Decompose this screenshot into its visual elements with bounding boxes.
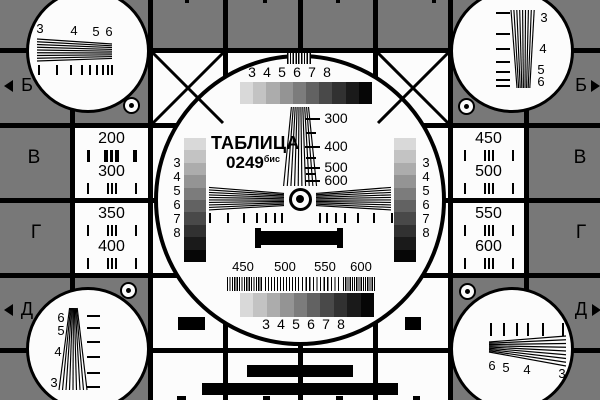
line-group xyxy=(512,150,514,161)
top-right-tick xyxy=(496,79,510,81)
grayscale-step xyxy=(184,200,206,212)
corner-circle-bottom-left xyxy=(26,287,150,400)
resolution-bar xyxy=(492,258,494,269)
grayscale-step xyxy=(320,293,333,317)
center-left-scale-label: 7 xyxy=(173,212,180,225)
resolution-bar xyxy=(110,150,114,162)
row-marker-right: В xyxy=(574,148,587,167)
resolution-value: 500 xyxy=(475,164,502,180)
burst-frequency-label: 450 xyxy=(232,260,254,273)
bottom-edge-number-fragment xyxy=(413,396,420,400)
line-group xyxy=(484,225,494,236)
center-right-scale-label: 3 xyxy=(422,156,429,169)
resolution-bar xyxy=(488,258,490,269)
grayscale-step xyxy=(332,82,345,104)
top-right-circle-label: 4 xyxy=(539,42,546,55)
center-burst-tick-right xyxy=(335,213,337,223)
frequency-label: 400 xyxy=(324,139,347,153)
step-wedge-top xyxy=(240,82,372,104)
grayscale-step xyxy=(184,250,206,262)
resolution-bar xyxy=(484,258,486,269)
resolution-value: 550 xyxy=(475,206,502,222)
bottom-right-tick xyxy=(490,323,492,336)
center-top-scale-label: 6 xyxy=(293,65,301,79)
resolution-value: 350 xyxy=(98,206,125,222)
bottom-bar-lower xyxy=(202,383,398,395)
center-left-scale-label: 5 xyxy=(173,184,180,197)
resolution-bar xyxy=(464,150,466,161)
center-bottom-scale-label: 7 xyxy=(322,317,330,331)
row-marker-arrow-left xyxy=(4,304,13,316)
step-wedge-bottom xyxy=(240,293,374,317)
top-right-circle-label: 3 xyxy=(540,11,547,24)
grayscale-step xyxy=(294,293,307,317)
line-group xyxy=(464,183,466,194)
frequency-scale-tick-major xyxy=(305,180,320,182)
frequency-scale-tick-major xyxy=(305,167,320,169)
grayscale-step xyxy=(184,188,206,200)
center-burst-tick-left xyxy=(209,213,211,223)
registration-mark-bottom-left xyxy=(120,282,137,299)
resolution-bar xyxy=(488,225,490,236)
resolution-bar xyxy=(484,225,486,236)
grayscale-step xyxy=(266,82,279,104)
top-left-circle-label: 5 xyxy=(92,25,99,38)
frequency-scale-tick-minor xyxy=(306,157,316,159)
line-group-pattern xyxy=(464,183,514,194)
top-left-tick xyxy=(38,65,40,75)
resolution-value: 300 xyxy=(98,164,125,180)
line-group xyxy=(464,150,466,161)
grayscale-step xyxy=(240,82,253,104)
resolution-cell-right-upper: 450500 xyxy=(453,128,524,198)
registration-mark-bottom-right xyxy=(459,283,476,300)
grayscale-step xyxy=(394,150,416,162)
top-right-tick xyxy=(496,71,510,73)
resolution-bar xyxy=(484,150,486,161)
grayscale-step xyxy=(184,237,206,249)
bottom-bar-upper xyxy=(247,365,353,377)
row-marker-right: Б xyxy=(575,76,587,94)
grayscale-step xyxy=(184,175,206,187)
top-right-tick xyxy=(496,48,510,50)
center-bottom-scale-label: 6 xyxy=(307,317,315,331)
resolution-bar xyxy=(107,258,109,269)
line-group xyxy=(464,258,466,269)
line-group xyxy=(484,183,494,194)
resolution-bar xyxy=(492,225,494,236)
center-top-scale-label: 5 xyxy=(278,65,286,79)
resolution-bar xyxy=(107,183,109,194)
black-reference-bar xyxy=(258,231,338,245)
grayscale-step xyxy=(319,82,332,104)
center-top-scale-label: 7 xyxy=(308,65,316,79)
bottom-left-tick xyxy=(87,356,100,358)
grayscale-step xyxy=(394,225,416,237)
top-edge-number-fragment xyxy=(263,0,267,3)
line-group xyxy=(484,150,494,161)
multiburst-segment xyxy=(343,277,375,291)
bottom-right-circle-label: 5 xyxy=(502,361,509,374)
grayscale-step xyxy=(253,82,266,104)
resolution-bar xyxy=(133,150,137,162)
grayscale-step xyxy=(184,163,206,175)
resolution-bar xyxy=(135,258,137,269)
bullseye-center-dot xyxy=(126,288,131,293)
top-right-tick xyxy=(496,85,510,87)
grayscale-step xyxy=(359,82,372,104)
line-group xyxy=(464,225,466,236)
grayscale-step xyxy=(184,212,206,224)
center-bottom-scale-label: 5 xyxy=(292,317,300,331)
center-burst-tick-left xyxy=(227,213,229,223)
center-left-scale-label: 8 xyxy=(173,226,180,239)
line-group-pattern xyxy=(464,258,514,269)
grayscale-step xyxy=(293,82,306,104)
line-group-pattern xyxy=(464,150,514,161)
center-burst-tick-right xyxy=(357,213,359,223)
center-right-scale-label: 4 xyxy=(422,170,429,183)
bottom-left-tick xyxy=(87,315,100,317)
resolution-value: 400 xyxy=(98,239,125,255)
center-burst-tick-left xyxy=(243,213,245,223)
bottom-right-circle-label: 6 xyxy=(488,359,495,372)
grayscale-step xyxy=(394,212,416,224)
resolution-bar xyxy=(484,183,486,194)
center-burst-tick-left xyxy=(256,213,258,223)
resolution-bar xyxy=(107,225,109,236)
bottom-edge-number-fragment xyxy=(263,396,270,400)
line-group-pattern xyxy=(87,150,137,162)
resolution-bar xyxy=(492,150,494,161)
resolution-bar xyxy=(87,258,89,269)
multiburst-segment xyxy=(227,277,263,291)
grayscale-step xyxy=(267,293,280,317)
center-bottom-scale-label: 3 xyxy=(262,317,270,331)
row-marker-arrow-right xyxy=(592,304,600,316)
line-group xyxy=(512,225,514,236)
top-left-circle-label: 4 xyxy=(70,24,77,37)
center-right-scale-label: 7 xyxy=(422,212,429,225)
burst-frequency-label: 500 xyxy=(274,260,296,273)
top-left-circle-label: 3 xyxy=(36,22,43,35)
resolution-bar xyxy=(464,183,466,194)
center-right-scale-label: 5 xyxy=(422,184,429,197)
row-marker-left: Б xyxy=(21,76,33,94)
top-edge-number-fragment xyxy=(432,0,436,3)
center-top-scale-label: 4 xyxy=(263,65,271,79)
resolution-bar xyxy=(115,150,119,162)
resolution-bar xyxy=(115,183,117,194)
resolution-value: 600 xyxy=(475,239,502,255)
top-left-tick xyxy=(81,65,83,75)
burst-frequency-label: 600 xyxy=(350,260,372,273)
table-number-suffix: бис xyxy=(264,154,280,164)
grayscale-step xyxy=(394,175,416,187)
top-left-tick xyxy=(89,65,91,75)
center-right-scale-label: 6 xyxy=(422,198,429,211)
top-right-tick xyxy=(496,61,510,63)
resolution-value: 200 xyxy=(98,131,125,147)
bottom-left-tick xyxy=(87,327,100,329)
grayscale-step xyxy=(184,138,206,150)
bottom-left-tick xyxy=(87,341,100,343)
frequency-scale-tick-major xyxy=(305,118,320,120)
line-group-pattern xyxy=(87,225,137,236)
top-left-tick xyxy=(102,65,104,75)
top-left-tick xyxy=(56,65,58,75)
grayscale-step xyxy=(280,293,293,317)
center-left-scale-label: 6 xyxy=(173,198,180,211)
bottom-right-circle-label: 4 xyxy=(523,363,530,376)
table-title-block: ТАБЛИЦА 0249бис xyxy=(211,134,295,171)
multiburst-segment xyxy=(265,277,300,291)
resolution-cell-left-lower: 350400 xyxy=(75,203,148,273)
center-right-scale-label: 8 xyxy=(422,226,429,239)
resolution-bar xyxy=(111,258,113,269)
resolution-bar xyxy=(115,225,117,236)
center-burst-tick-right xyxy=(391,213,393,223)
resolution-cell-left-upper: 200300 xyxy=(75,128,148,198)
resolution-bar xyxy=(488,183,490,194)
top-grating-patch xyxy=(287,53,311,64)
bullseye-center-dot xyxy=(465,289,470,294)
resolution-bar xyxy=(135,225,137,236)
line-group xyxy=(87,258,89,269)
row-marker-left: В xyxy=(28,148,41,167)
center-burst-tick-right xyxy=(344,213,346,223)
line-group xyxy=(87,183,89,194)
top-left-tick xyxy=(107,65,109,75)
bullseye-center-dot xyxy=(296,195,304,203)
grayscale-step xyxy=(394,188,416,200)
grayscale-step xyxy=(394,138,416,150)
resolution-bar xyxy=(87,150,91,162)
center-burst-tick-right xyxy=(326,213,328,223)
line-group xyxy=(512,258,514,269)
step-wedge-left xyxy=(184,138,206,262)
grayscale-step xyxy=(240,293,253,317)
resolution-bar xyxy=(512,258,514,269)
frequency-scale-tick-major xyxy=(305,146,320,148)
resolution-bar xyxy=(464,258,466,269)
center-registration-mark xyxy=(289,188,312,211)
bottom-left-tick xyxy=(87,372,100,374)
top-left-tick xyxy=(111,65,113,75)
grayscale-step xyxy=(394,200,416,212)
bottom-right-tick xyxy=(516,323,518,336)
grayscale-step xyxy=(394,237,416,249)
bottom-right-tick xyxy=(503,323,505,336)
row-marker-right: Г xyxy=(576,223,586,242)
center-left-scale-label: 3 xyxy=(173,156,180,169)
grayscale-step xyxy=(184,150,206,162)
center-bottom-scale-label: 4 xyxy=(277,317,285,331)
center-burst-tick-right xyxy=(319,213,321,223)
grayscale-step xyxy=(346,82,359,104)
bottom-edge-number-fragment xyxy=(336,396,343,400)
bottom-right-circle-label: 3 xyxy=(558,367,565,380)
top-edge-number-fragment xyxy=(336,0,340,3)
bottom-edge-number-fragment xyxy=(177,396,186,400)
line-group xyxy=(135,183,137,194)
multiburst-segment xyxy=(302,277,340,291)
bottom-right-tick xyxy=(542,323,544,336)
line-group xyxy=(512,183,514,194)
corner-circle-bottom-right xyxy=(450,287,574,400)
line-group xyxy=(135,225,137,236)
line-group xyxy=(104,150,119,162)
frequency-scale-tick-minor xyxy=(306,173,316,175)
center-top-scale-label: 8 xyxy=(323,65,331,79)
bottom-right-tick xyxy=(562,323,564,336)
center-burst-tick-right xyxy=(373,213,375,223)
center-top-scale-label: 3 xyxy=(248,65,256,79)
top-right-tick xyxy=(496,12,510,14)
center-left-scale-label: 4 xyxy=(173,170,180,183)
line-group-pattern xyxy=(464,225,514,236)
resolution-bar xyxy=(464,225,466,236)
center-burst-tick-left xyxy=(274,213,276,223)
grayscale-step xyxy=(394,163,416,175)
bottom-left-circle-label: 4 xyxy=(54,345,61,358)
resolution-bar xyxy=(512,183,514,194)
top-left-tick xyxy=(96,65,98,75)
resolution-bar xyxy=(87,183,89,194)
black-patch-right xyxy=(405,317,421,330)
top-edge-number-fragment xyxy=(185,0,189,3)
top-right-tick xyxy=(496,33,510,35)
grayscale-step xyxy=(347,293,360,317)
table-number: 0249 xyxy=(226,153,264,172)
line-group xyxy=(107,183,117,194)
table-title: ТАБЛИЦА xyxy=(211,134,295,152)
line-group-pattern xyxy=(87,183,137,194)
line-group xyxy=(107,258,117,269)
line-group xyxy=(107,225,117,236)
step-wedge-right xyxy=(394,138,416,262)
grayscale-step xyxy=(184,225,206,237)
bottom-left-tick xyxy=(87,386,100,388)
grayscale-step xyxy=(361,293,374,317)
resolution-cell-right-lower: 550600 xyxy=(453,203,524,273)
burst-frequency-label: 550 xyxy=(314,260,336,273)
row-marker-arrow-left xyxy=(4,80,13,92)
black-patch-left xyxy=(178,317,205,330)
line-group xyxy=(87,150,91,162)
line-group xyxy=(133,150,137,162)
frequency-label: 600 xyxy=(324,173,347,187)
top-left-tick xyxy=(70,65,72,75)
resolution-bar xyxy=(492,183,494,194)
row-marker-arrow-right xyxy=(591,80,600,92)
table-number-line: 0249бис xyxy=(211,154,295,171)
resolution-bar xyxy=(104,150,108,162)
registration-mark-top-right xyxy=(458,98,475,115)
row-marker-right: Д xyxy=(575,300,587,318)
center-burst-tick-left xyxy=(265,213,267,223)
resolution-bar xyxy=(512,150,514,161)
top-right-circle-label: 6 xyxy=(537,75,544,88)
grayscale-step xyxy=(280,82,293,104)
resolution-bar xyxy=(111,225,113,236)
resolution-bar xyxy=(111,183,113,194)
line-group xyxy=(135,258,137,269)
resolution-bar xyxy=(512,225,514,236)
resolution-value: 450 xyxy=(475,131,502,147)
center-bottom-scale-label: 8 xyxy=(337,317,345,331)
top-left-circle-label: 6 xyxy=(105,25,112,38)
grayscale-step xyxy=(306,82,319,104)
corner-circle-top-right xyxy=(450,0,574,113)
bullseye-center-dot xyxy=(464,104,469,109)
bottom-left-circle-label: 3 xyxy=(50,376,57,389)
line-group xyxy=(484,258,494,269)
frequency-label: 300 xyxy=(324,111,347,125)
row-marker-left: Г xyxy=(31,223,41,242)
grayscale-step xyxy=(307,293,320,317)
bullseye-center-dot xyxy=(129,103,134,108)
grayscale-step xyxy=(253,293,266,317)
registration-mark-top-left xyxy=(123,97,140,114)
grayscale-step xyxy=(334,293,347,317)
resolution-bar xyxy=(115,258,117,269)
resolution-bar xyxy=(135,183,137,194)
frequency-scale-tick-minor xyxy=(306,132,316,134)
row-marker-left: Д xyxy=(21,300,33,318)
resolution-bar xyxy=(488,150,490,161)
grayscale-step xyxy=(394,250,416,262)
center-burst-tick-left xyxy=(281,213,283,223)
resolution-bar xyxy=(87,225,89,236)
bottom-left-circle-label: 5 xyxy=(57,324,64,337)
line-group xyxy=(87,225,89,236)
bottom-right-tick xyxy=(527,323,529,336)
line-group-pattern xyxy=(87,258,137,269)
tv-test-card: 2003003504004505005506003456783456783344… xyxy=(0,0,600,400)
